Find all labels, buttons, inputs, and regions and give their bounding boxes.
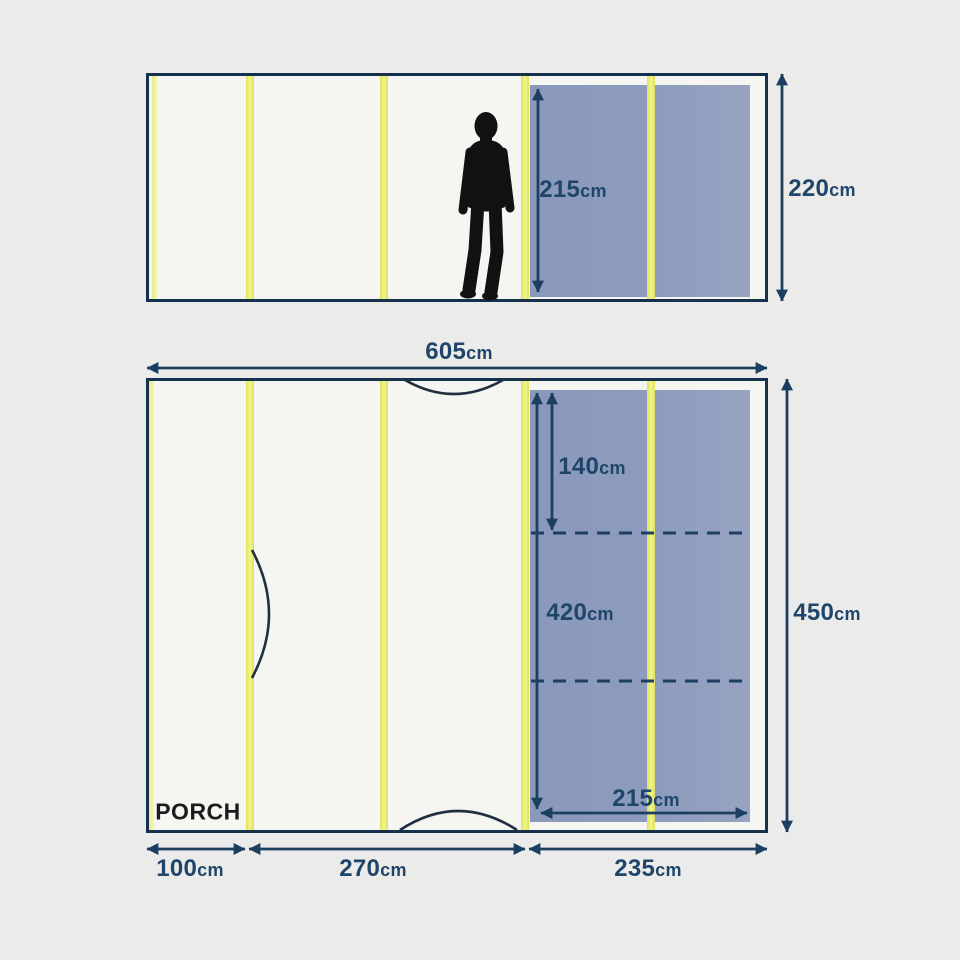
dim-value: 140 [558,453,599,480]
dim-value: 100 [156,855,197,882]
dim-sleeping-length: 420cm [546,599,614,627]
pole-stripe [152,76,157,299]
dim-unit: cm [380,860,407,880]
dim-total-height: 220cm [788,175,856,203]
dim-unit: cm [834,604,861,624]
pole-stripe [380,76,388,299]
dim-unit: cm [466,343,493,363]
dim-value: 270 [339,855,380,882]
dim-value: 450 [793,599,834,626]
dim-unit: cm [197,860,224,880]
dim-value: 215 [539,176,580,203]
dim-total-width: 605cm [425,338,493,366]
pole-stripe [246,76,254,299]
dim-value: 235 [614,855,655,882]
dim-value: 215 [612,785,653,812]
dim-value: 605 [425,338,466,365]
pole-stripe [380,381,388,830]
dim-total-depth: 450cm [793,599,861,627]
dim-unit: cm [599,458,626,478]
pole-stripe [647,76,655,299]
dim-unit: cm [587,604,614,624]
dim-unit: cm [655,860,682,880]
dim-inner-height: 215cm [539,176,607,204]
dim-section-porch: 100cm [156,855,224,883]
dim-unit: cm [829,180,856,200]
dim-section-living: 270cm [339,855,407,883]
pole-stripe [149,381,154,830]
dim-unit: cm [580,181,607,201]
pole-stripe [521,76,529,299]
dim-front-depth: 140cm [558,453,626,481]
dim-sleeping-width: 215cm [612,785,680,813]
pole-stripe [647,381,655,830]
dim-section-sleeping: 235cm [614,855,682,883]
dim-value: 420 [546,599,587,626]
porch-label: PORCH [155,799,241,826]
pole-stripe [246,381,254,830]
tent-dimension-diagram: 215cm 220cm 605cm 140cm 420cm 215cm 450c… [0,0,960,960]
dim-unit: cm [653,790,680,810]
dim-value: 220 [788,175,829,202]
pole-stripe [521,381,529,830]
